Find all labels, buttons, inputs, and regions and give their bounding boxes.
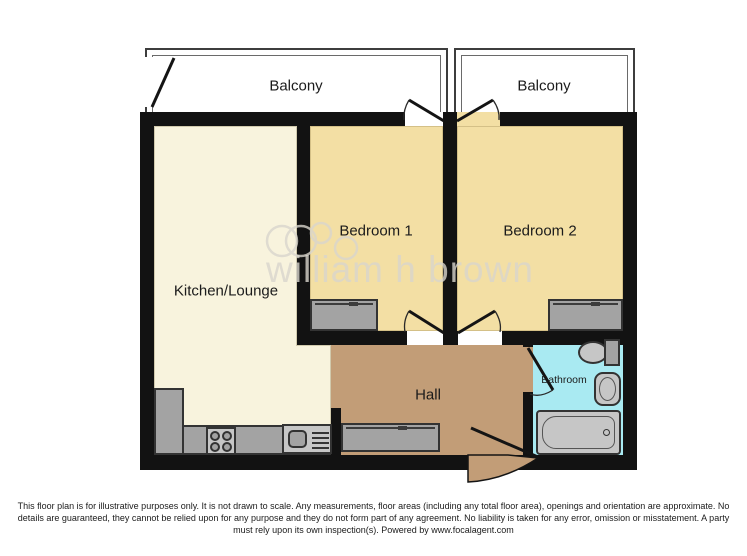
burner-icon [210,442,220,452]
balcony-left-label: Balcony [269,78,322,95]
sink-drainer-line [312,437,329,439]
burner-icon [222,442,232,452]
kitchen-sink-icon [282,424,332,454]
wall-stub [331,408,341,455]
bathroom-door-opening [523,347,533,392]
sink-bowl [288,430,307,448]
disclaimer-line-2: details are guaranteed, they cannot be r… [0,512,747,524]
bathtub-icon [536,410,621,455]
bedroom2-label: Bedroom 2 [503,223,576,240]
bathtub-drain [603,429,610,436]
hall-label: Hall [415,387,441,404]
balcony-door-opening [142,57,154,107]
hall-cupboard [341,423,440,452]
burner-icon [222,431,232,441]
basin-icon [594,372,621,406]
bedroom1-door-opening [407,331,443,345]
sink-drainer-line [312,432,329,434]
burner-icon [210,431,220,441]
balcony-right-label: Balcony [517,78,570,95]
entrance-door-opening [468,455,508,470]
hob-icon [206,427,236,455]
disclaimer-line-1: This floor plan is for illustrative purp… [0,500,747,512]
disclaimer-line-3: must rely upon its own inspection(s). Po… [0,524,747,536]
kitchen-lounge-label: Kitchen/Lounge [174,283,278,300]
kitchen-counter-left [154,388,184,455]
basin-inner [599,377,616,401]
wardrobe-bedroom1 [310,299,378,331]
bedroom2-door-opening [458,331,502,345]
toilet-cistern [604,339,620,366]
wardrobe-bedroom2 [548,299,623,331]
bedroom1-balcony-door-opening [405,112,443,126]
sink-drainer-line [312,442,329,444]
bathroom-label: Bathroom [541,374,587,386]
disclaimer-text: This floor plan is for illustrative purp… [0,500,747,536]
floorplan-canvas: william h brown Balcony Balcony Kitchen/… [0,0,747,556]
bedroom2-balcony-door-opening [457,112,500,126]
sink-drainer-line [312,447,329,449]
watermark-text: william h brown [266,249,534,291]
bedroom1-label: Bedroom 1 [339,223,412,240]
